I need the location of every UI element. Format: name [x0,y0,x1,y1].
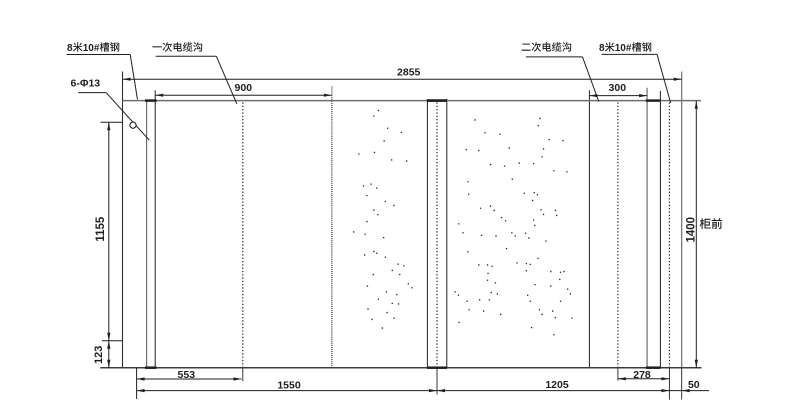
svg-text:123: 123 [93,346,105,364]
svg-text:1205: 1205 [545,379,569,391]
svg-text:278: 278 [633,369,651,381]
svg-text:8: 8 [67,43,73,54]
svg-text:900: 900 [235,82,253,94]
svg-text:10#: 10# [615,43,632,54]
svg-text:1400: 1400 [685,217,697,243]
svg-text:1550: 1550 [277,380,301,392]
svg-text:10#: 10# [83,43,100,54]
svg-text:300: 300 [609,82,627,94]
svg-text:8: 8 [599,43,605,54]
svg-text:1155: 1155 [95,216,107,242]
svg-text:6-Φ13: 6-Φ13 [71,77,101,89]
svg-text:2855: 2855 [397,66,421,78]
svg-text:553: 553 [178,369,196,381]
svg-text:50: 50 [688,379,700,391]
